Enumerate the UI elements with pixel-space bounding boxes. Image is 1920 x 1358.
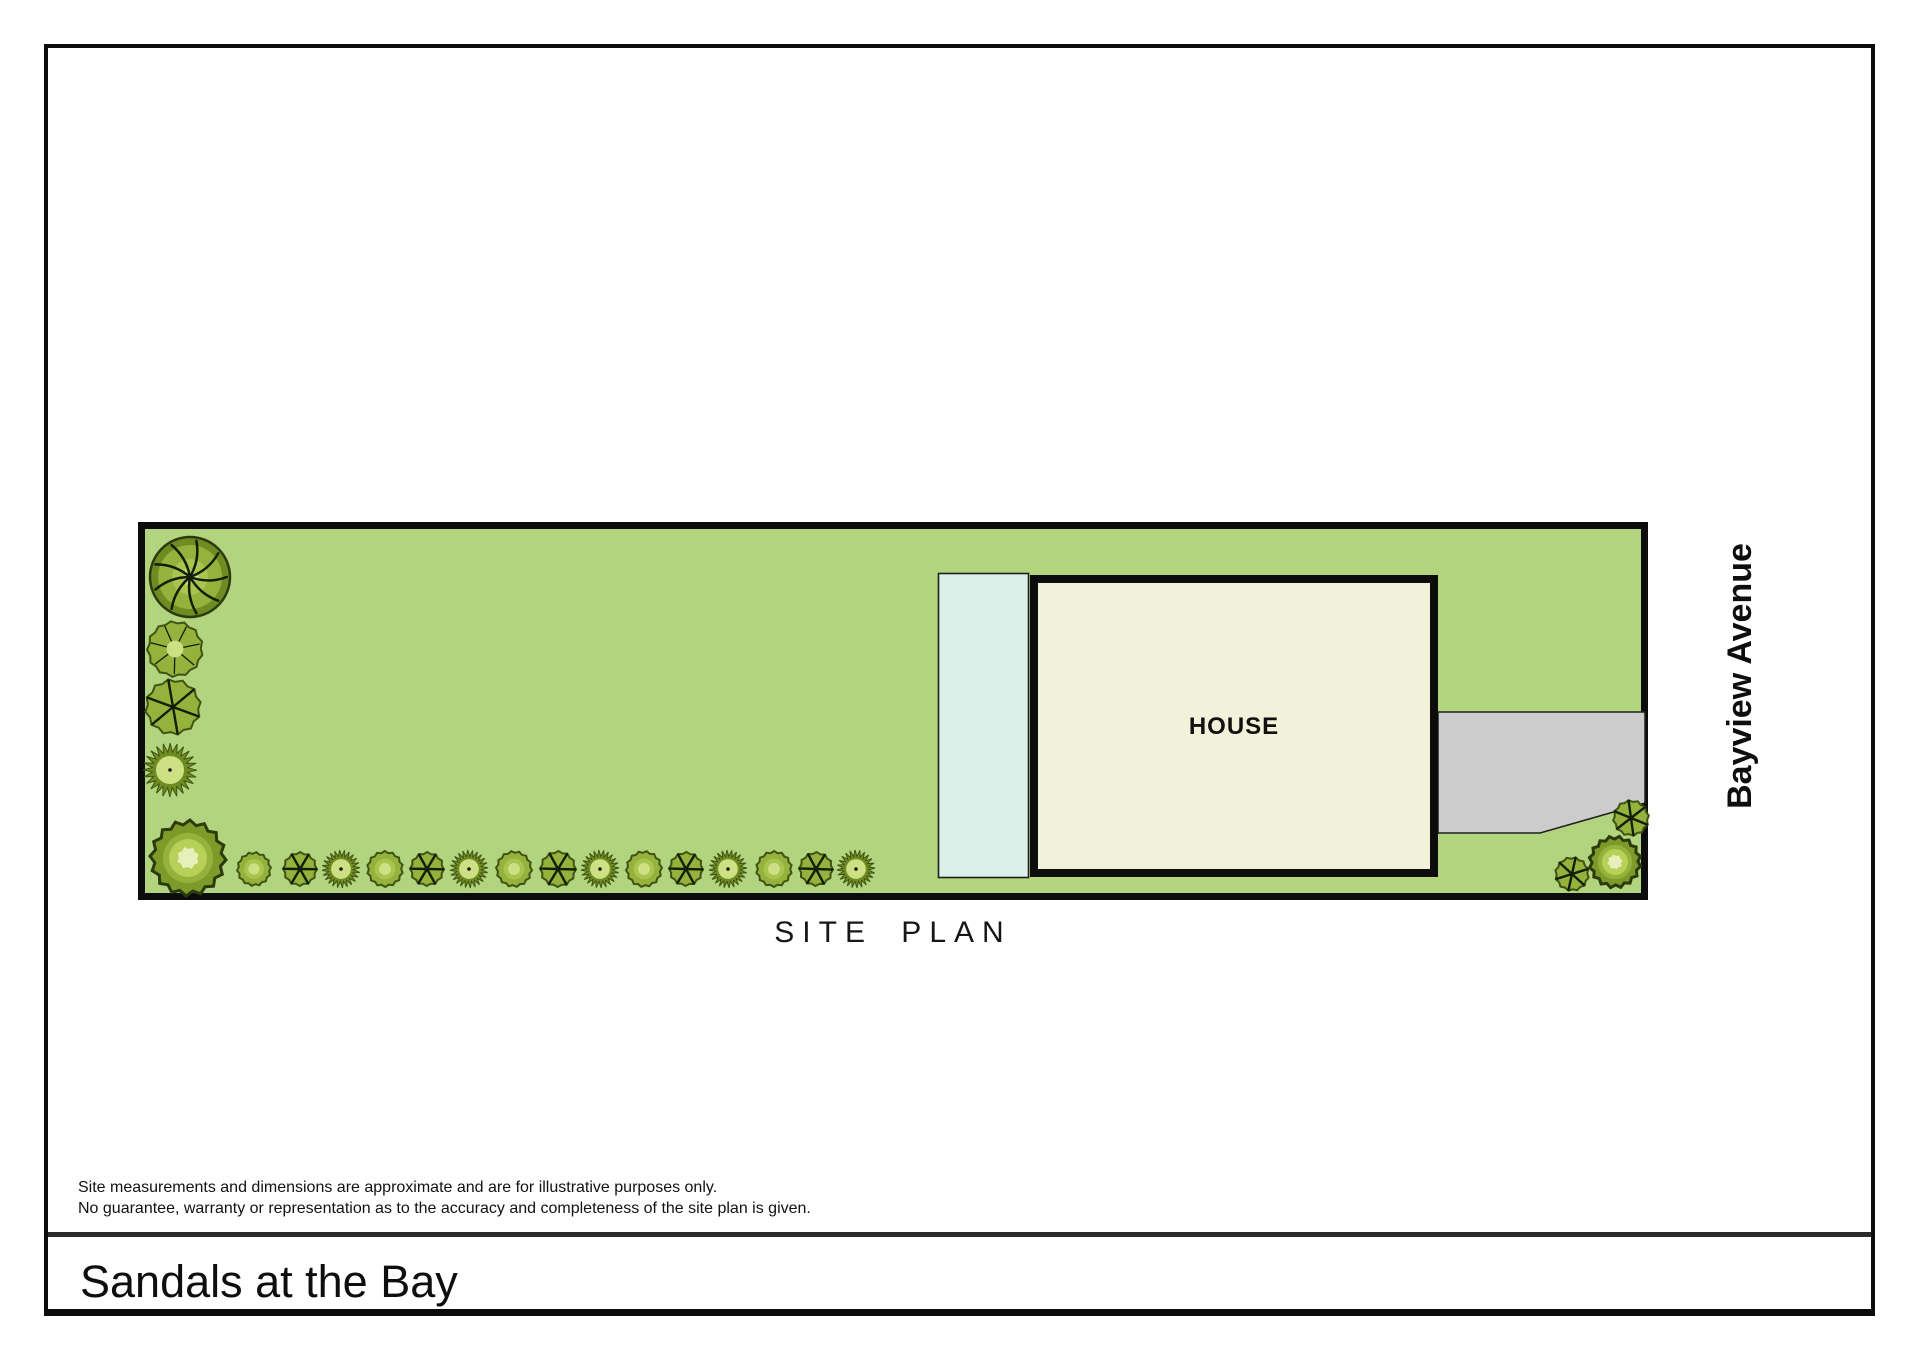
tree-plain: [367, 851, 402, 887]
title-separator-line: [48, 1232, 1871, 1237]
tree-spoked: [1555, 857, 1588, 890]
tree-branchy: [150, 537, 230, 617]
disclaimer-line-2: No guarantee, warranty or representation…: [78, 1198, 811, 1219]
tree-spoked: [1613, 800, 1649, 836]
tree-bigbush: [150, 820, 226, 896]
street-label: Bayview Avenue: [1718, 526, 1762, 826]
disclaimer-line-1: Site measurements and dimensions are app…: [78, 1177, 811, 1198]
disclaimer-block: Site measurements and dimensions are app…: [78, 1177, 811, 1219]
tree-spoked: [145, 679, 200, 734]
pool: [939, 574, 1029, 878]
tree-spiky: [143, 743, 197, 797]
tree-plain: [756, 851, 791, 887]
site-plan-svg: HOUSE: [138, 522, 1648, 900]
plan-caption: SITE PLAN: [138, 916, 1648, 950]
page-title: Sandals at the Bay: [80, 1256, 458, 1308]
house-label: HOUSE: [1189, 713, 1279, 740]
